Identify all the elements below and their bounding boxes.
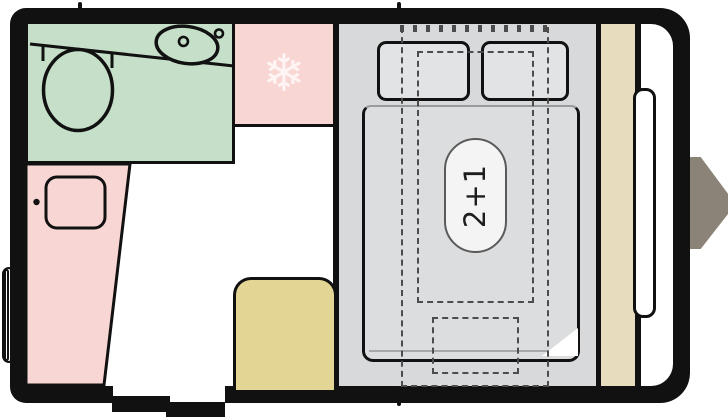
toilet-icon — [44, 50, 113, 131]
window-sill — [78, 4, 82, 10]
window-bottom-bedroom — [397, 391, 538, 415]
sink-drain-dot — [178, 36, 188, 46]
bed-capacity-badge: 2+1 — [444, 138, 507, 253]
front-wall-window — [633, 88, 656, 318]
window-rear — [2, 267, 20, 363]
window-sill — [4, 269, 9, 361]
caravan-floorplan: ❄ 2+1 — [0, 0, 728, 417]
tap-dot — [215, 30, 223, 38]
stove-icon — [46, 177, 105, 228]
bed-foot-extension-outline — [432, 317, 519, 374]
stove-knob-dot — [33, 199, 39, 205]
window-top-washroom — [78, 2, 181, 26]
window-pane — [397, 393, 401, 406]
bed-capacity-label: 2+1 — [459, 163, 493, 227]
window-sill — [397, 4, 401, 10]
window-top-bedroom — [397, 2, 538, 26]
seat-bench — [233, 277, 337, 390]
